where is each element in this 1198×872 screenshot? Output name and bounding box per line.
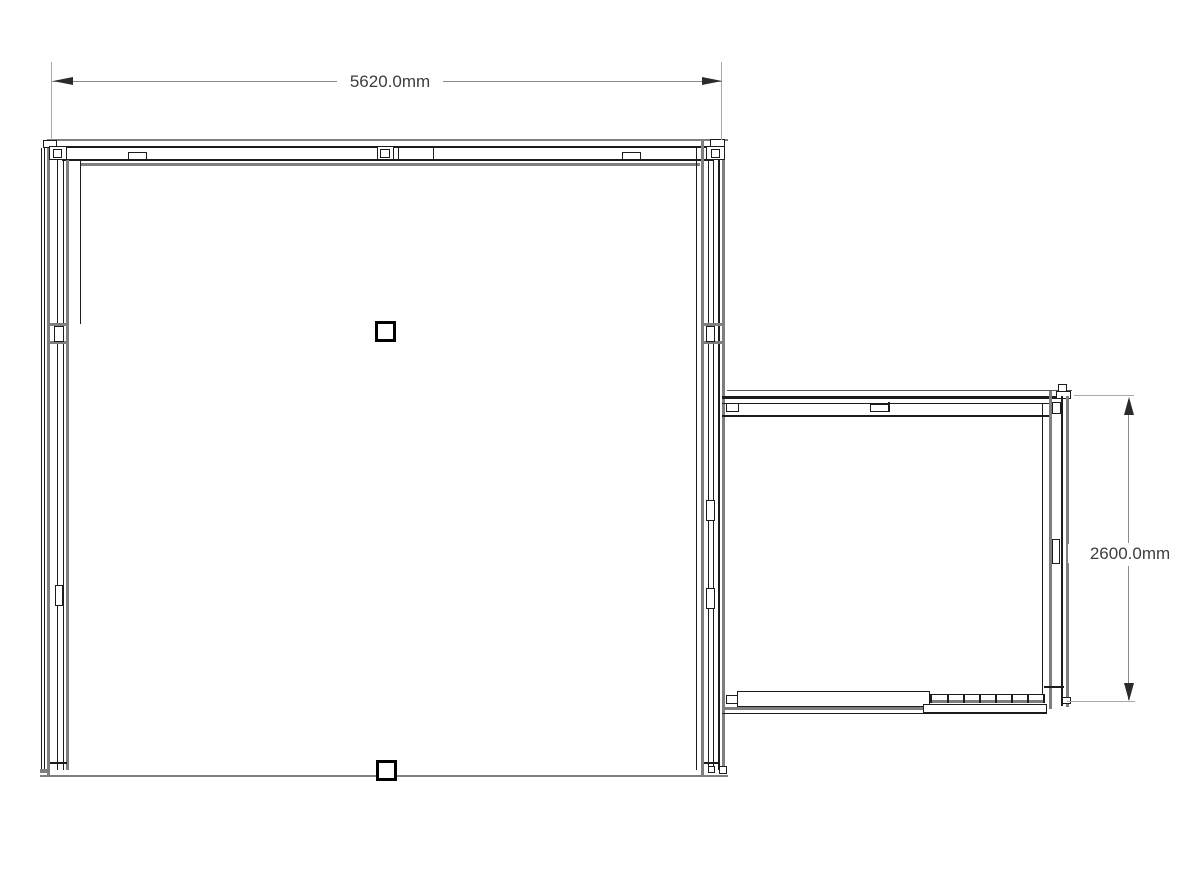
dimension-arrow-up	[1124, 397, 1134, 415]
width-dimension-label: 5620.0mm	[337, 72, 443, 91]
extension-line	[721, 62, 722, 140]
side-room-top-wall-line	[722, 415, 1050, 417]
wall-connector	[622, 152, 641, 160]
side-room-right-wall-line	[1042, 403, 1043, 695]
dimension-line	[1128, 400, 1129, 543]
track-tick	[947, 694, 949, 703]
dimension-line	[427, 81, 722, 82]
track-tick	[1027, 694, 1029, 703]
corner-post-square	[53, 149, 62, 158]
right-wall-door-handle	[706, 500, 715, 521]
main-room-left-wall-line	[44, 148, 45, 770]
dimension-arrow-right	[702, 77, 722, 85]
right-wall-door-handle	[706, 588, 715, 609]
main-room-left-wall-line	[63, 160, 64, 770]
extension-line	[1067, 701, 1135, 702]
right-wall-break-insert	[706, 326, 715, 342]
extension-line	[1074, 395, 1134, 396]
main-room-right-wall-line-gray	[701, 139, 704, 777]
left-wall-door-handle	[55, 585, 63, 606]
track-tick	[995, 694, 997, 703]
track-tick	[1011, 694, 1013, 703]
main-room-right-wall-line	[718, 146, 720, 770]
wall-connector	[870, 404, 889, 412]
main-room-top-wall-inner-line	[80, 163, 700, 166]
threshold-box	[923, 704, 1047, 713]
main-room-right-wall-line	[696, 148, 697, 770]
main-room-right-wall-line	[708, 160, 709, 770]
left-wall-step-foot	[40, 769, 50, 773]
corner-post-square	[1052, 402, 1061, 414]
dimension-arrow-left	[53, 77, 73, 85]
main-room-top-wall-outer-line	[48, 139, 728, 141]
right-wall-step-foot	[719, 766, 727, 774]
right-wall-step-foot	[708, 766, 715, 773]
main-room-left-wall-line	[57, 160, 58, 770]
track-tick	[1043, 694, 1045, 703]
column-center	[375, 321, 396, 342]
dimension-line	[1128, 566, 1129, 700]
side-room-bottom-wall-line	[722, 713, 1047, 714]
side-room-bottom-wall-line-gray	[722, 707, 930, 710]
wall-connector	[726, 695, 738, 704]
left-wall-break-insert	[54, 326, 64, 342]
wall-connector	[128, 152, 147, 160]
side-room-top-wall-outer-line	[727, 390, 1072, 391]
corner-post-square	[711, 149, 720, 158]
track-tick	[963, 694, 965, 703]
floor-plan-canvas: 5620.0mm 2600.0mm	[0, 0, 1198, 872]
bottom-wall-panel	[737, 691, 930, 707]
main-room-left-wall-line-gray	[47, 139, 50, 777]
main-room-left-wall-line	[41, 148, 42, 770]
track-tick	[979, 694, 981, 703]
dimension-line	[52, 81, 345, 82]
height-dimension-label: 2600.0mm	[1068, 544, 1192, 563]
right-wall-step-line	[704, 762, 719, 764]
dimension-arrow-down	[1124, 683, 1134, 701]
main-room-left-wall-line-gray	[66, 160, 69, 770]
mid-wall-post-square	[380, 149, 390, 158]
main-room-right-wall-line	[713, 160, 714, 770]
side-room-top-wall-thick-line	[722, 396, 1057, 399]
column-bottom	[376, 760, 397, 781]
wall-joint-tick	[433, 146, 434, 160]
side-room-right-wall-line	[1061, 396, 1063, 706]
wall-connector	[726, 403, 739, 412]
track-tick	[930, 694, 932, 703]
wall-joint-tick	[398, 146, 399, 160]
right-wall-door-handle	[1052, 539, 1060, 564]
wall-joint-tick	[888, 402, 890, 412]
left-wall-step-line	[50, 762, 67, 764]
extension-line	[51, 62, 52, 140]
right-wall-step-line	[1044, 686, 1064, 688]
main-room-right-wall-line-gray	[722, 146, 725, 770]
main-room-left-wall-line	[80, 160, 81, 324]
